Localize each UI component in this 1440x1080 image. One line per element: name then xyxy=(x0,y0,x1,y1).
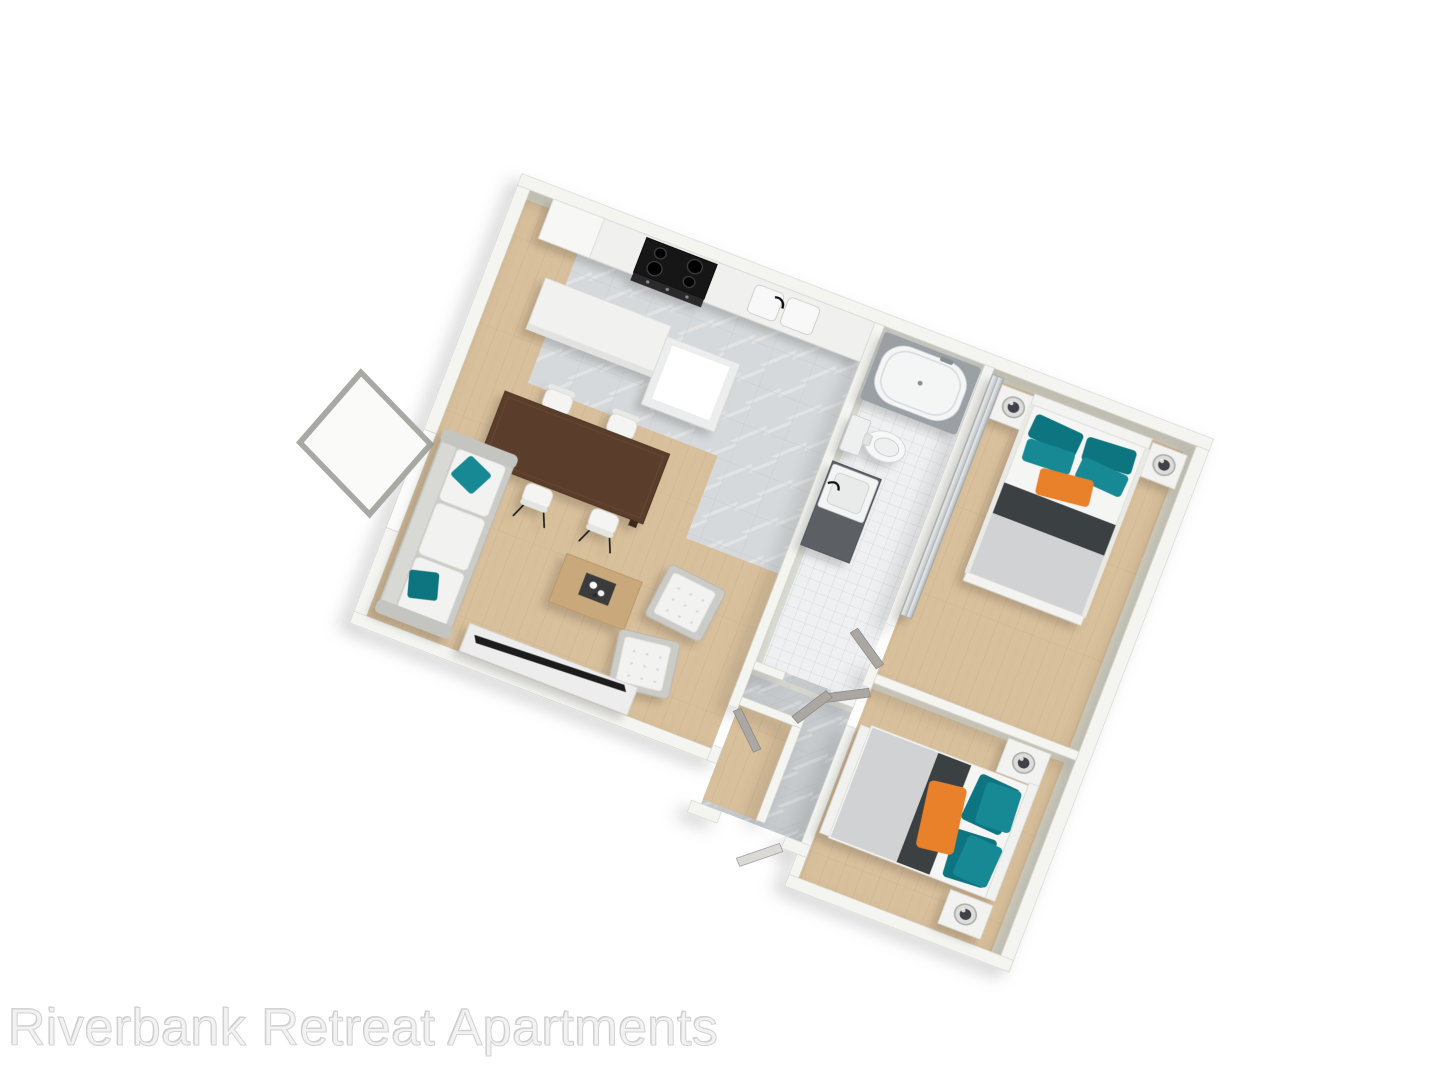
watermark-text: Riverbank Retreat Apartments xyxy=(8,998,719,1058)
floorplan-page: Riverbank Retreat Apartments xyxy=(0,0,1440,1080)
door-front-entry xyxy=(736,843,783,866)
teal-throw-pillow xyxy=(407,569,439,601)
floorplan-3d-render xyxy=(0,0,1440,1080)
